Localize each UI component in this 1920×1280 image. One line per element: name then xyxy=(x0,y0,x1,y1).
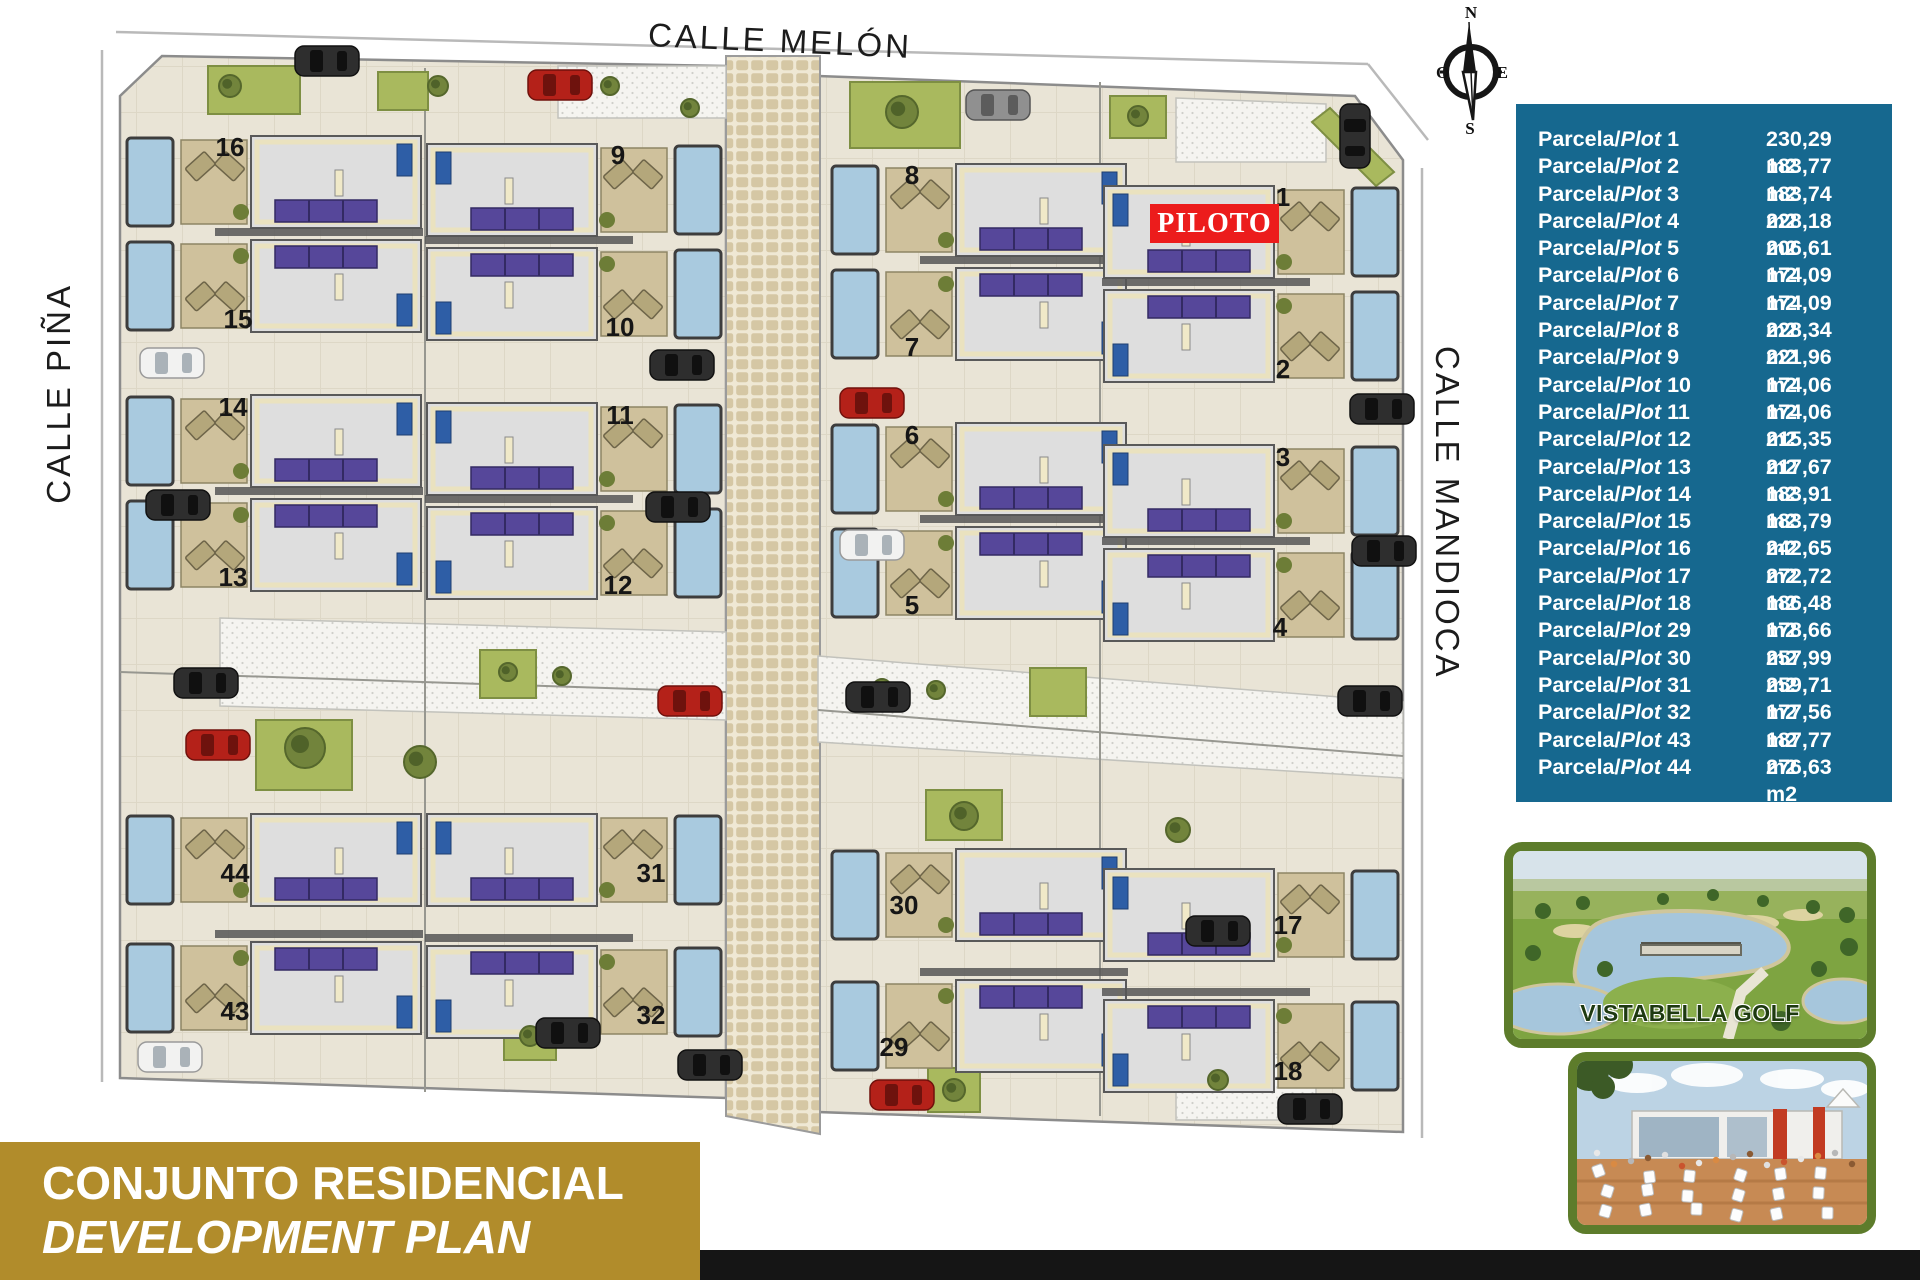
solar-panels xyxy=(275,948,377,970)
plot-area-value: 174,06 m2 xyxy=(1766,372,1868,399)
car xyxy=(174,668,238,698)
plot-29: 29 xyxy=(832,968,1128,1072)
plot-label: Parcela/Plot 1 xyxy=(1538,126,1766,153)
plot-15: 15 xyxy=(127,228,423,334)
table-row: Parcela/Plot 11174,06 m2 xyxy=(1538,399,1868,426)
plot-label: Parcela/Plot 31 xyxy=(1538,672,1766,699)
car xyxy=(295,46,359,76)
plot-area-table: Parcela/Plot 1230,29 m2Parcela/Plot 2183… xyxy=(1516,104,1892,802)
tree xyxy=(553,667,571,685)
plot-area-value: 174,09 m2 xyxy=(1766,262,1868,289)
car xyxy=(646,492,710,522)
tree xyxy=(886,96,918,128)
pool xyxy=(1352,447,1398,535)
solar-panels xyxy=(275,878,377,900)
car xyxy=(528,70,592,100)
tree xyxy=(1166,818,1190,842)
plot-label: Parcela/Plot 2 xyxy=(1538,153,1766,180)
car xyxy=(1338,686,1402,716)
plot-area-value: 183,77 m2 xyxy=(1766,153,1868,180)
plot-label: Parcela/Plot 32 xyxy=(1538,699,1766,726)
plot-area-value: 206,61 m2 xyxy=(1766,235,1868,262)
plot-area-value: 178,66 m2 xyxy=(1766,617,1868,644)
table-row: Parcela/Plot 16242,65 m2 xyxy=(1538,535,1868,562)
plot-area-value: 174,09 m2 xyxy=(1766,290,1868,317)
table-row: Parcela/Plot 5206,61 m2 xyxy=(1538,235,1868,262)
shrub xyxy=(599,515,615,531)
plot-18: 18 xyxy=(1102,988,1398,1092)
plot-10: 10 xyxy=(425,236,721,342)
solar-panels xyxy=(471,513,573,535)
plot-17: 17 xyxy=(1104,869,1398,961)
car xyxy=(138,1042,202,1072)
street-label-calle-pina: CALLE PIÑA xyxy=(40,283,78,504)
solar-panels xyxy=(980,913,1082,935)
shrub xyxy=(599,471,615,487)
shrub xyxy=(1276,298,1292,314)
shrub xyxy=(938,535,954,551)
plot-number-44: 44 xyxy=(221,858,250,888)
solar-panels xyxy=(980,533,1082,555)
plot-label: Parcela/Plot 15 xyxy=(1538,508,1766,535)
shrub xyxy=(938,276,954,292)
plot-label: Parcela/Plot 10 xyxy=(1538,372,1766,399)
solar-panels xyxy=(471,208,573,230)
tree xyxy=(927,681,945,699)
plot-30: 30 xyxy=(832,849,1126,941)
shrub xyxy=(938,491,954,507)
pool xyxy=(832,270,878,358)
shrub xyxy=(233,248,249,264)
pool xyxy=(127,242,173,330)
table-row: Parcela/Plot 4228,18 m2 xyxy=(1538,208,1868,235)
pool xyxy=(832,425,878,513)
pool xyxy=(1352,188,1398,276)
central-road xyxy=(726,56,820,1134)
plot-label: Parcela/Plot 14 xyxy=(1538,481,1766,508)
plot-number-32: 32 xyxy=(637,1000,666,1030)
solar-panels xyxy=(1148,250,1250,272)
table-row: Parcela/Plot 1230,29 m2 xyxy=(1538,126,1868,153)
car xyxy=(536,1018,600,1048)
plot-number-18: 18 xyxy=(1274,1056,1303,1086)
plot-label: Parcela/Plot 16 xyxy=(1538,535,1766,562)
table-row: Parcela/Plot 32177,56 m2 xyxy=(1538,699,1868,726)
plot-area-value: 187,77 m2 xyxy=(1766,727,1868,754)
car xyxy=(650,350,714,380)
table-row: Parcela/Plot 7174,09 m2 xyxy=(1538,290,1868,317)
plot-number-4: 4 xyxy=(1273,612,1288,642)
pool xyxy=(1352,292,1398,380)
car xyxy=(840,388,904,418)
pool xyxy=(675,948,721,1036)
site-plan: 161514139101112876512344443313230291718 xyxy=(90,20,1430,1140)
plot-area-value: 186,48 m2 xyxy=(1766,590,1868,617)
compass-s: S xyxy=(1465,119,1474,136)
pool xyxy=(832,166,878,254)
solar-panels xyxy=(980,986,1082,1008)
pool xyxy=(675,250,721,338)
plot-number-30: 30 xyxy=(890,890,919,920)
car xyxy=(658,686,722,716)
table-row: Parcela/Plot 15183,79 m2 xyxy=(1538,508,1868,535)
plot-8: 8 xyxy=(832,160,1126,256)
table-row: Parcela/Plot 3183,74 m2 xyxy=(1538,181,1868,208)
tree xyxy=(681,99,699,117)
shrub xyxy=(938,917,954,933)
plot-area-value: 228,18 m2 xyxy=(1766,208,1868,235)
pool xyxy=(832,982,878,1070)
plot-number-9: 9 xyxy=(611,140,625,170)
plot-label: Parcela/Plot 12 xyxy=(1538,426,1766,453)
pool xyxy=(1352,871,1398,959)
solar-panels xyxy=(471,878,573,900)
shrub xyxy=(599,256,615,272)
street-label-calle-mandioca: CALLE MANDIOCA xyxy=(1428,346,1466,680)
car xyxy=(1278,1094,1342,1124)
solar-panels xyxy=(1148,509,1250,531)
plot-number-13: 13 xyxy=(219,562,248,592)
solar-panels xyxy=(980,487,1082,509)
plot-31: 31 xyxy=(427,814,721,906)
plot-9: 9 xyxy=(427,140,721,236)
plot-number-14: 14 xyxy=(219,392,248,422)
tree xyxy=(499,663,517,681)
car xyxy=(846,682,910,712)
tree xyxy=(1208,1070,1228,1090)
pool xyxy=(1352,1002,1398,1090)
plot-area-value: 272,72 m2 xyxy=(1766,563,1868,590)
plot-number-43: 43 xyxy=(221,996,250,1026)
car xyxy=(840,530,904,560)
shrub xyxy=(1276,557,1292,573)
table-row: Parcela/Plot 14183,91 m2 xyxy=(1538,481,1868,508)
car xyxy=(678,1050,742,1080)
tree xyxy=(219,75,241,97)
plot-label: Parcela/Plot 6 xyxy=(1538,262,1766,289)
car xyxy=(966,90,1030,120)
compass-e: E xyxy=(1497,63,1508,82)
plot-area-value: 183,74 m2 xyxy=(1766,181,1868,208)
solar-panels xyxy=(471,467,573,489)
pool xyxy=(127,944,173,1032)
development-plan-banner: CONJUNTO RESIDENCIAL DEVELOPMENT PLAN xyxy=(0,1142,700,1280)
plot-number-10: 10 xyxy=(606,312,635,342)
table-row: Parcela/Plot 17272,72 m2 xyxy=(1538,563,1868,590)
tree xyxy=(404,746,436,778)
grass-patch xyxy=(1030,668,1086,716)
solar-panels xyxy=(1148,555,1250,577)
solar-panels xyxy=(275,505,377,527)
car xyxy=(186,730,250,760)
plot-number-3: 3 xyxy=(1276,442,1290,472)
solar-panels xyxy=(275,459,377,481)
compass-o: O xyxy=(1436,63,1449,82)
plot-11: 11 xyxy=(427,400,721,495)
shrub xyxy=(233,463,249,479)
table-row: Parcela/Plot 30257,99 m2 xyxy=(1538,645,1868,672)
solar-panels xyxy=(275,246,377,268)
car xyxy=(870,1080,934,1110)
table-row: Parcela/Plot 29178,66 m2 xyxy=(1538,617,1868,644)
plot-2: 2 xyxy=(1102,278,1398,384)
pool xyxy=(675,405,721,493)
plot-number-7: 7 xyxy=(905,332,919,362)
plot-number-2: 2 xyxy=(1276,354,1290,384)
golf-photo-caption: VISTABELLA GOLF xyxy=(1513,1000,1867,1027)
plot-area-value: 215,35 m2 xyxy=(1766,426,1868,453)
tree xyxy=(950,802,978,830)
table-row: Parcela/Plot 10174,06 m2 xyxy=(1538,372,1868,399)
car xyxy=(1352,536,1416,566)
plot-area-value: 221,96 m2 xyxy=(1766,344,1868,371)
plot-14: 14 xyxy=(127,392,421,487)
plot-number-31: 31 xyxy=(637,858,666,888)
plot-number-8: 8 xyxy=(905,160,919,190)
shrub xyxy=(1276,513,1292,529)
solar-panels xyxy=(1148,1006,1250,1028)
table-row: Parcela/Plot 6174,09 m2 xyxy=(1538,262,1868,289)
table-row: Parcela/Plot 2183,77 m2 xyxy=(1538,153,1868,180)
table-row: Parcela/Plot 13217,67 m2 xyxy=(1538,454,1868,481)
shrub xyxy=(233,507,249,523)
pool xyxy=(675,816,721,904)
tree xyxy=(1128,106,1148,126)
plot-44: 44 xyxy=(127,814,421,906)
plot-number-29: 29 xyxy=(880,1032,909,1062)
shrub xyxy=(599,954,615,970)
plot-43: 43 xyxy=(127,930,423,1034)
bottom-black-bar xyxy=(700,1250,1920,1280)
plot-area-value: 257,99 m2 xyxy=(1766,645,1868,672)
plot-label: Parcela/Plot 5 xyxy=(1538,235,1766,262)
plot-area-value: 276,63 m2 xyxy=(1766,754,1868,781)
plot-number-11: 11 xyxy=(606,400,634,430)
compass-rose-icon: N S O E xyxy=(1436,6,1508,136)
grass-patch xyxy=(378,72,428,110)
solar-panels xyxy=(1148,296,1250,318)
table-row: Parcela/Plot 12215,35 m2 xyxy=(1538,426,1868,453)
solar-panels xyxy=(980,274,1082,296)
plot-label: Parcela/Plot 29 xyxy=(1538,617,1766,644)
banner-title-es: CONJUNTO RESIDENCIAL xyxy=(42,1156,700,1210)
car xyxy=(1350,394,1414,424)
table-row: Parcela/Plot 9221,96 m2 xyxy=(1538,344,1868,371)
plot-area-value: 183,79 m2 xyxy=(1766,508,1868,535)
car xyxy=(1186,916,1250,946)
plot-area-value: 259,71 m2 xyxy=(1766,672,1868,699)
shrub xyxy=(938,232,954,248)
plot-number-15: 15 xyxy=(224,304,253,334)
shrub xyxy=(1276,254,1292,270)
pool xyxy=(127,138,173,226)
pool xyxy=(127,816,173,904)
pool xyxy=(675,146,721,234)
solar-panels xyxy=(980,228,1082,250)
plot-3: 3 xyxy=(1104,442,1398,537)
table-row: Parcela/Plot 31259,71 m2 xyxy=(1538,672,1868,699)
plot-label: Parcela/Plot 44 xyxy=(1538,754,1766,781)
pool xyxy=(832,851,878,939)
plot-label: Parcela/Plot 43 xyxy=(1538,727,1766,754)
table-row: Parcela/Plot 8228,34 m2 xyxy=(1538,317,1868,344)
plot-area-value: 177,56 m2 xyxy=(1766,699,1868,726)
pool xyxy=(127,397,173,485)
plot-area-value: 228,34 m2 xyxy=(1766,317,1868,344)
plot-label: Parcela/Plot 9 xyxy=(1538,344,1766,371)
piloto-show-home-label: PILOTO xyxy=(1150,204,1279,243)
plot-number-17: 17 xyxy=(1274,910,1303,940)
car xyxy=(140,348,204,378)
vistabella-golf-photo: VISTABELLA GOLF xyxy=(1504,842,1876,1048)
plot-label: Parcela/Plot 3 xyxy=(1538,181,1766,208)
shrub xyxy=(938,988,954,1004)
plot-number-16: 16 xyxy=(216,132,245,162)
solar-panels xyxy=(471,952,573,974)
plot-area-value: 230,29 m2 xyxy=(1766,126,1868,153)
clubhouse-terrace-photo xyxy=(1568,1052,1876,1234)
plot-7: 7 xyxy=(832,256,1128,362)
table-row: Parcela/Plot 18186,48 m2 xyxy=(1538,590,1868,617)
plot-label: Parcela/Plot 18 xyxy=(1538,590,1766,617)
plot-label: Parcela/Plot 4 xyxy=(1538,208,1766,235)
plot-area-value: 217,67 m2 xyxy=(1766,454,1868,481)
tree xyxy=(428,76,448,96)
plot-label: Parcela/Plot 11 xyxy=(1538,399,1766,426)
solar-panels xyxy=(275,200,377,222)
compass-n: N xyxy=(1465,6,1478,22)
plot-label: Parcela/Plot 13 xyxy=(1538,454,1766,481)
plot-area-value: 183,91 m2 xyxy=(1766,481,1868,508)
tree xyxy=(943,1079,965,1101)
car xyxy=(1340,104,1370,168)
plot-label: Parcela/Plot 7 xyxy=(1538,290,1766,317)
plot-number-12: 12 xyxy=(604,570,633,600)
plot-6: 6 xyxy=(832,420,1126,515)
car xyxy=(146,490,210,520)
plot-number-6: 6 xyxy=(905,420,919,450)
plot-label: Parcela/Plot 30 xyxy=(1538,645,1766,672)
plot-label: Parcela/Plot 17 xyxy=(1538,563,1766,590)
table-row: Parcela/Plot 43187,77 m2 xyxy=(1538,727,1868,754)
plot-label: Parcela/Plot 8 xyxy=(1538,317,1766,344)
tree xyxy=(601,77,619,95)
tree xyxy=(285,728,325,768)
shrub xyxy=(233,204,249,220)
plot-area-value: 242,65 m2 xyxy=(1766,535,1868,562)
plot-16: 16 xyxy=(127,132,421,228)
solar-panels xyxy=(471,254,573,276)
shrub xyxy=(599,882,615,898)
terrace-cafe-illustration xyxy=(1577,1061,1867,1225)
plot-number-5: 5 xyxy=(905,590,919,620)
plot-area-value: 174,06 m2 xyxy=(1766,399,1868,426)
shrub xyxy=(599,212,615,228)
shrub xyxy=(1276,1008,1292,1024)
shrub xyxy=(233,950,249,966)
table-row: Parcela/Plot 44276,63 m2 xyxy=(1538,754,1868,781)
banner-title-en: DEVELOPMENT PLAN xyxy=(42,1210,700,1264)
